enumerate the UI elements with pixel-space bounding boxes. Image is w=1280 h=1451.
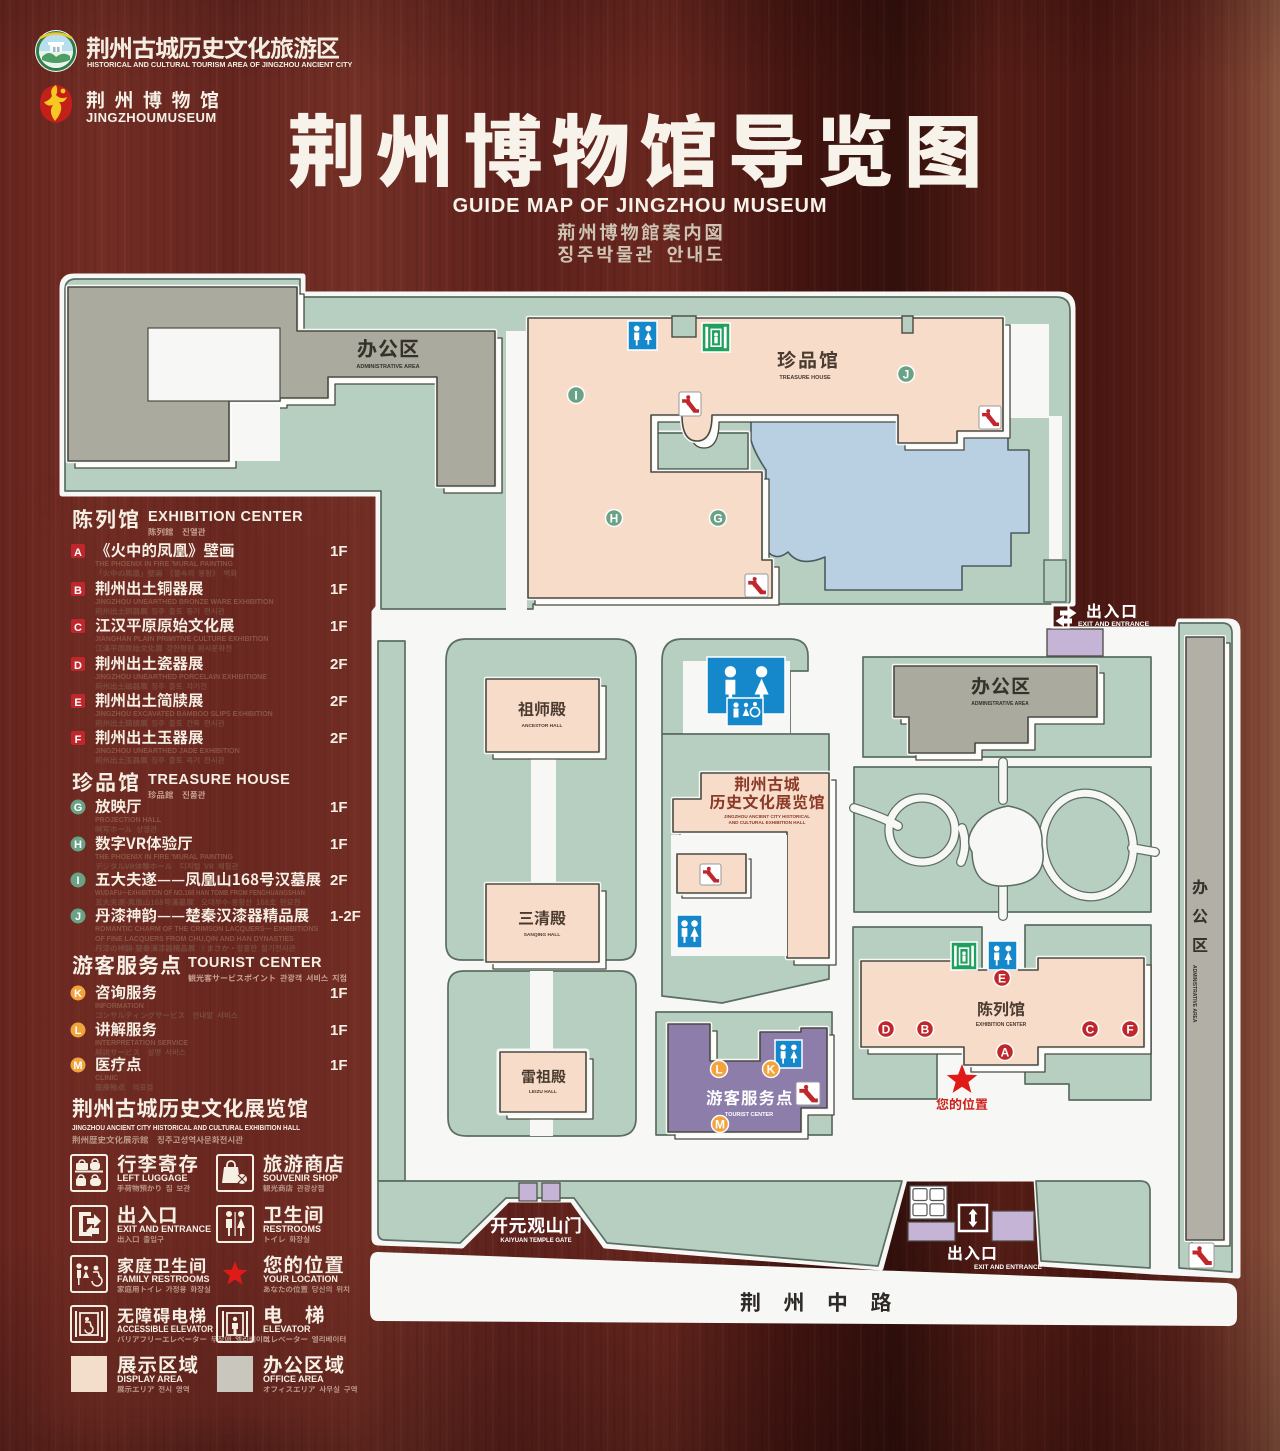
svg-text:1F: 1F [330, 836, 348, 853]
svg-text:JINGZHOU EXCAVATED BAMBOO SLIP: JINGZHOU EXCAVATED BAMBOO SLIPS EXHIBITI… [95, 711, 273, 718]
svg-text:K: K [767, 1062, 776, 1076]
svg-text:AND CULTURAL EXHIBITION HALL: AND CULTURAL EXHIBITION HALL [729, 820, 806, 825]
svg-text:THE PHOENIX IN FIRE 'MURAL PAI: THE PHOENIX IN FIRE 'MURAL PAINTING [95, 854, 233, 861]
svg-text:J: J [75, 911, 81, 923]
svg-text:KAIYUAN TEMPLE GATE: KAIYUAN TEMPLE GATE [500, 1238, 571, 1244]
svg-text:2F: 2F [330, 872, 348, 889]
svg-text:HISTORICAL AND CULTURAL TOURIS: HISTORICAL AND CULTURAL TOURISM AREA OF … [87, 60, 353, 69]
svg-text:1F: 1F [330, 985, 348, 1002]
svg-text:1F: 1F [330, 799, 348, 816]
svg-text:ANCESTOR HALL: ANCESTOR HALL [522, 723, 563, 729]
svg-text:A: A [1001, 1045, 1010, 1059]
svg-text:LEIZU HALL: LEIZU HALL [529, 1089, 557, 1095]
svg-text:ELEVATOR: ELEVATOR [263, 1324, 311, 1334]
svg-text:L: L [715, 1062, 722, 1076]
svg-text:I: I [76, 875, 79, 887]
svg-text:EXHIBITION CENTER: EXHIBITION CENTER [148, 509, 303, 525]
svg-text:F: F [75, 734, 82, 746]
svg-text:WUDAFU—EXHIBITION OF NO.168 HA: WUDAFU—EXHIBITION OF NO.168 HAN TOMB FRO… [95, 890, 305, 897]
svg-text:RESTROOMS: RESTROOMS [263, 1224, 321, 1234]
svg-text:EXIT AND ENTRANCE: EXIT AND ENTRANCE [117, 1224, 211, 1234]
svg-text:JIANGHAN PLAIN PRIMITIVE CULTU: JIANGHAN PLAIN PRIMITIVE CULTURE EXHIBIT… [95, 636, 268, 643]
svg-text:1F: 1F [330, 581, 348, 598]
svg-text:I: I [574, 388, 577, 402]
svg-text:B: B [921, 1022, 930, 1036]
svg-text:YOUR LOCATION: YOUR LOCATION [263, 1274, 338, 1284]
svg-text:ROMANTIC CHARM OF THE CRIMSON: ROMANTIC CHARM OF THE CRIMSON LACQUERS— … [95, 926, 319, 933]
svg-text:D: D [74, 660, 82, 672]
svg-text:DISPLAY AREA: DISPLAY AREA [117, 1374, 183, 1384]
svg-text:OF FINE LACQUERS FROM CHU,QIN: OF FINE LACQUERS FROM CHU,QIN AND HAN DY… [95, 936, 294, 943]
svg-text:TOURIST CENTER: TOURIST CENTER [188, 955, 322, 971]
svg-text:A: A [74, 547, 82, 559]
svg-text:E: E [74, 697, 81, 709]
svg-text:C: C [1086, 1022, 1095, 1036]
svg-text:ADMINISTRATIVE AREA: ADMINISTRATIVE AREA [356, 364, 419, 370]
svg-text:TOURIST CENTER: TOURIST CENTER [725, 1112, 773, 1118]
svg-text:EXIT AND ENTRANCE: EXIT AND ENTRANCE [974, 1264, 1043, 1271]
svg-text:JINGZHOU UNEARTHED BRONZE WARE: JINGZHOU UNEARTHED BRONZE WARE EXHIBITIO… [95, 599, 274, 606]
svg-text:D: D [882, 1022, 891, 1036]
svg-text:INFORMATION: INFORMATION [95, 1003, 144, 1010]
svg-text:K: K [74, 988, 82, 1000]
svg-text:B: B [74, 585, 82, 597]
svg-text:2F: 2F [330, 656, 348, 673]
svg-text:2F: 2F [330, 693, 348, 710]
svg-text:H: H [74, 839, 82, 851]
svg-text:1F: 1F [330, 1022, 348, 1039]
svg-text:ACCESSIBLE ELEVATOR: ACCESSIBLE ELEVATOR [117, 1324, 213, 1334]
svg-text:FAMILY RESTROOMS: FAMILY RESTROOMS [117, 1274, 210, 1284]
svg-text:LEFT LUGGAGE: LEFT LUGGAGE [117, 1173, 188, 1183]
svg-text:1F: 1F [330, 1057, 348, 1074]
svg-text:JINGZHOU ANCIENT CITY HISTORIC: JINGZHOU ANCIENT CITY HISTORICAL [724, 814, 810, 819]
svg-text:SANQING HALL: SANQING HALL [524, 932, 561, 938]
svg-text:SOUVENIR SHOP: SOUVENIR SHOP [263, 1173, 338, 1183]
svg-text:G: G [713, 511, 722, 525]
svg-text:PROJECTION HALL: PROJECTION HALL [95, 817, 162, 824]
svg-text:EXHIBITION CENTER: EXHIBITION CENTER [976, 1022, 1027, 1028]
svg-text:EXIT AND ENTRANCE: EXIT AND ENTRANCE [1078, 621, 1150, 628]
svg-text:M: M [715, 1117, 725, 1131]
svg-text:M: M [73, 1060, 82, 1072]
svg-text:1F: 1F [330, 543, 348, 560]
svg-text:TREASURE HOUSE: TREASURE HOUSE [779, 375, 831, 381]
svg-text:1-2F: 1-2F [330, 908, 361, 925]
svg-text:F: F [1126, 1022, 1133, 1036]
svg-text:THE PHOENIX IN FIRE 'MURAL PAI: THE PHOENIX IN FIRE 'MURAL PAINTING [95, 561, 233, 568]
svg-text:H: H [610, 511, 619, 525]
svg-text:GUIDE MAP OF JINGZHOU MUSEUM: GUIDE MAP OF JINGZHOU MUSEUM [453, 195, 828, 217]
svg-text:C: C [74, 622, 82, 634]
svg-text:CLINIC: CLINIC [95, 1075, 118, 1082]
svg-text:JINGZHOU ANCIENT CITY HISTORIC: JINGZHOU ANCIENT CITY HISTORICAL AND CUL… [72, 1123, 300, 1132]
svg-text:J: J [903, 367, 910, 381]
svg-text:L: L [75, 1025, 82, 1037]
svg-text:TREASURE HOUSE: TREASURE HOUSE [148, 772, 290, 788]
svg-text:JINGZHOU UNEARTHED JADE EXHIBI: JINGZHOU UNEARTHED JADE EXHIBITION [95, 748, 240, 755]
svg-text:OFFICE AREA: OFFICE AREA [263, 1374, 324, 1384]
svg-text:JINGZHOUMUSEUM: JINGZHOUMUSEUM [86, 110, 217, 125]
svg-text:E: E [998, 971, 1006, 985]
svg-text:G: G [74, 802, 83, 814]
svg-text:ADMINISTRATIVE AREA: ADMINISTRATIVE AREA [971, 701, 1029, 707]
svg-text:2F: 2F [330, 730, 348, 747]
svg-text:1F: 1F [330, 618, 348, 635]
svg-text:JINGZHOU UNEARTHED PORCELAIN E: JINGZHOU UNEARTHED PORCELAIN EXHIBITIONE [95, 674, 267, 681]
svg-text:ADMINISTRATIVE AREA: ADMINISTRATIVE AREA [1191, 965, 1197, 1023]
svg-text:INTERPRETATION SERVICE: INTERPRETATION SERVICE [95, 1040, 188, 1047]
